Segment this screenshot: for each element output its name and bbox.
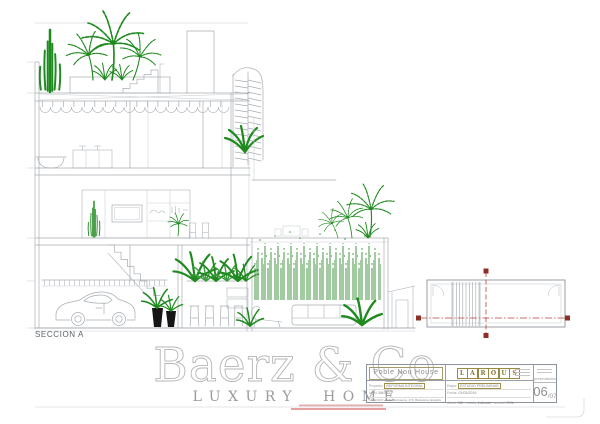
field-value: REFORMA INTEGRAL [384, 383, 425, 389]
garage-car [56, 292, 135, 326]
field-value: 01/03/2019 [458, 391, 476, 395]
field-label: Proyecto: [369, 384, 383, 388]
field-label: escala: [466, 401, 477, 404]
field-label: dibujó: [447, 401, 457, 404]
field-label: Etapa: [447, 384, 457, 388]
second-floor-interior [36, 101, 222, 168]
chaise-longue [252, 306, 283, 327]
field-label: Nivel: [369, 391, 377, 395]
living-room-cactus [88, 201, 100, 237]
courtyard-palms [314, 184, 394, 243]
first-floor-interior [82, 190, 209, 239]
field-value: NA [458, 401, 463, 404]
roof-cactus [40, 30, 60, 92]
logo-info-line [515, 372, 530, 373]
sheet-number-value: 06 [533, 384, 547, 399]
field-value: indicada [478, 401, 491, 404]
sofa [292, 305, 356, 325]
field-value: Calle Marruecos, 170, Barcelona, España [385, 398, 441, 402]
ground-floor [42, 238, 252, 331]
logo-info-line [515, 375, 530, 376]
info-line [537, 372, 552, 373]
title-block-divider [367, 380, 533, 381]
field-label: Dirección: [369, 398, 384, 402]
drawing-sheet: Baerz & Co LUXURY HOME [0, 0, 600, 424]
logo-letter: U [499, 368, 510, 379]
project-title: Poble Nou House [369, 367, 443, 380]
key-plan-stair [452, 282, 480, 326]
info-line [537, 369, 552, 370]
key-plan [416, 269, 570, 339]
section-cut-lines [416, 269, 570, 339]
field-label: aprobó: [494, 401, 506, 404]
section-drawing-canvas: Baerz & Co LUXURY HOME [0, 0, 600, 424]
field-direccion: Dirección: Calle Marruecos, 170, Barcelo… [369, 397, 444, 404]
field-value: BASICO [378, 391, 392, 395]
title-block-divider [445, 365, 446, 402]
logo-letter: O [488, 368, 499, 379]
roof-palm-trees [62, 11, 164, 85]
indoor-palm-plant [168, 213, 189, 236]
field-value: ESTUDIO PRELIMINAR [458, 383, 501, 389]
logo-letter: L [457, 368, 468, 379]
larous-logo: L A R O U S [457, 368, 520, 379]
field-meta-row: dibujó:NA escala:indicada aprobó:RGL [447, 397, 531, 404]
field-value: RGL [507, 401, 514, 404]
sheet-total: /07 [548, 393, 557, 400]
vertical-garden [254, 243, 381, 302]
field-label: Fecha: [447, 391, 457, 395]
patio-plant [237, 308, 264, 326]
patio-bush [342, 299, 382, 325]
logo-info-line [515, 369, 530, 370]
section-label: SECCION A [35, 330, 84, 339]
title-block: Poble Nou House L A R O U S Proyecto: RE… [366, 364, 557, 403]
sheet-number: 06/07 [533, 383, 557, 401]
outbuilding [388, 286, 415, 328]
potted-plants [142, 288, 183, 327]
logo-letter: R [478, 368, 489, 379]
spiral-staircase [233, 68, 263, 167]
logo-letter: A [467, 368, 478, 379]
counter-plants [173, 252, 258, 281]
watermark-fine-print [299, 405, 383, 407]
